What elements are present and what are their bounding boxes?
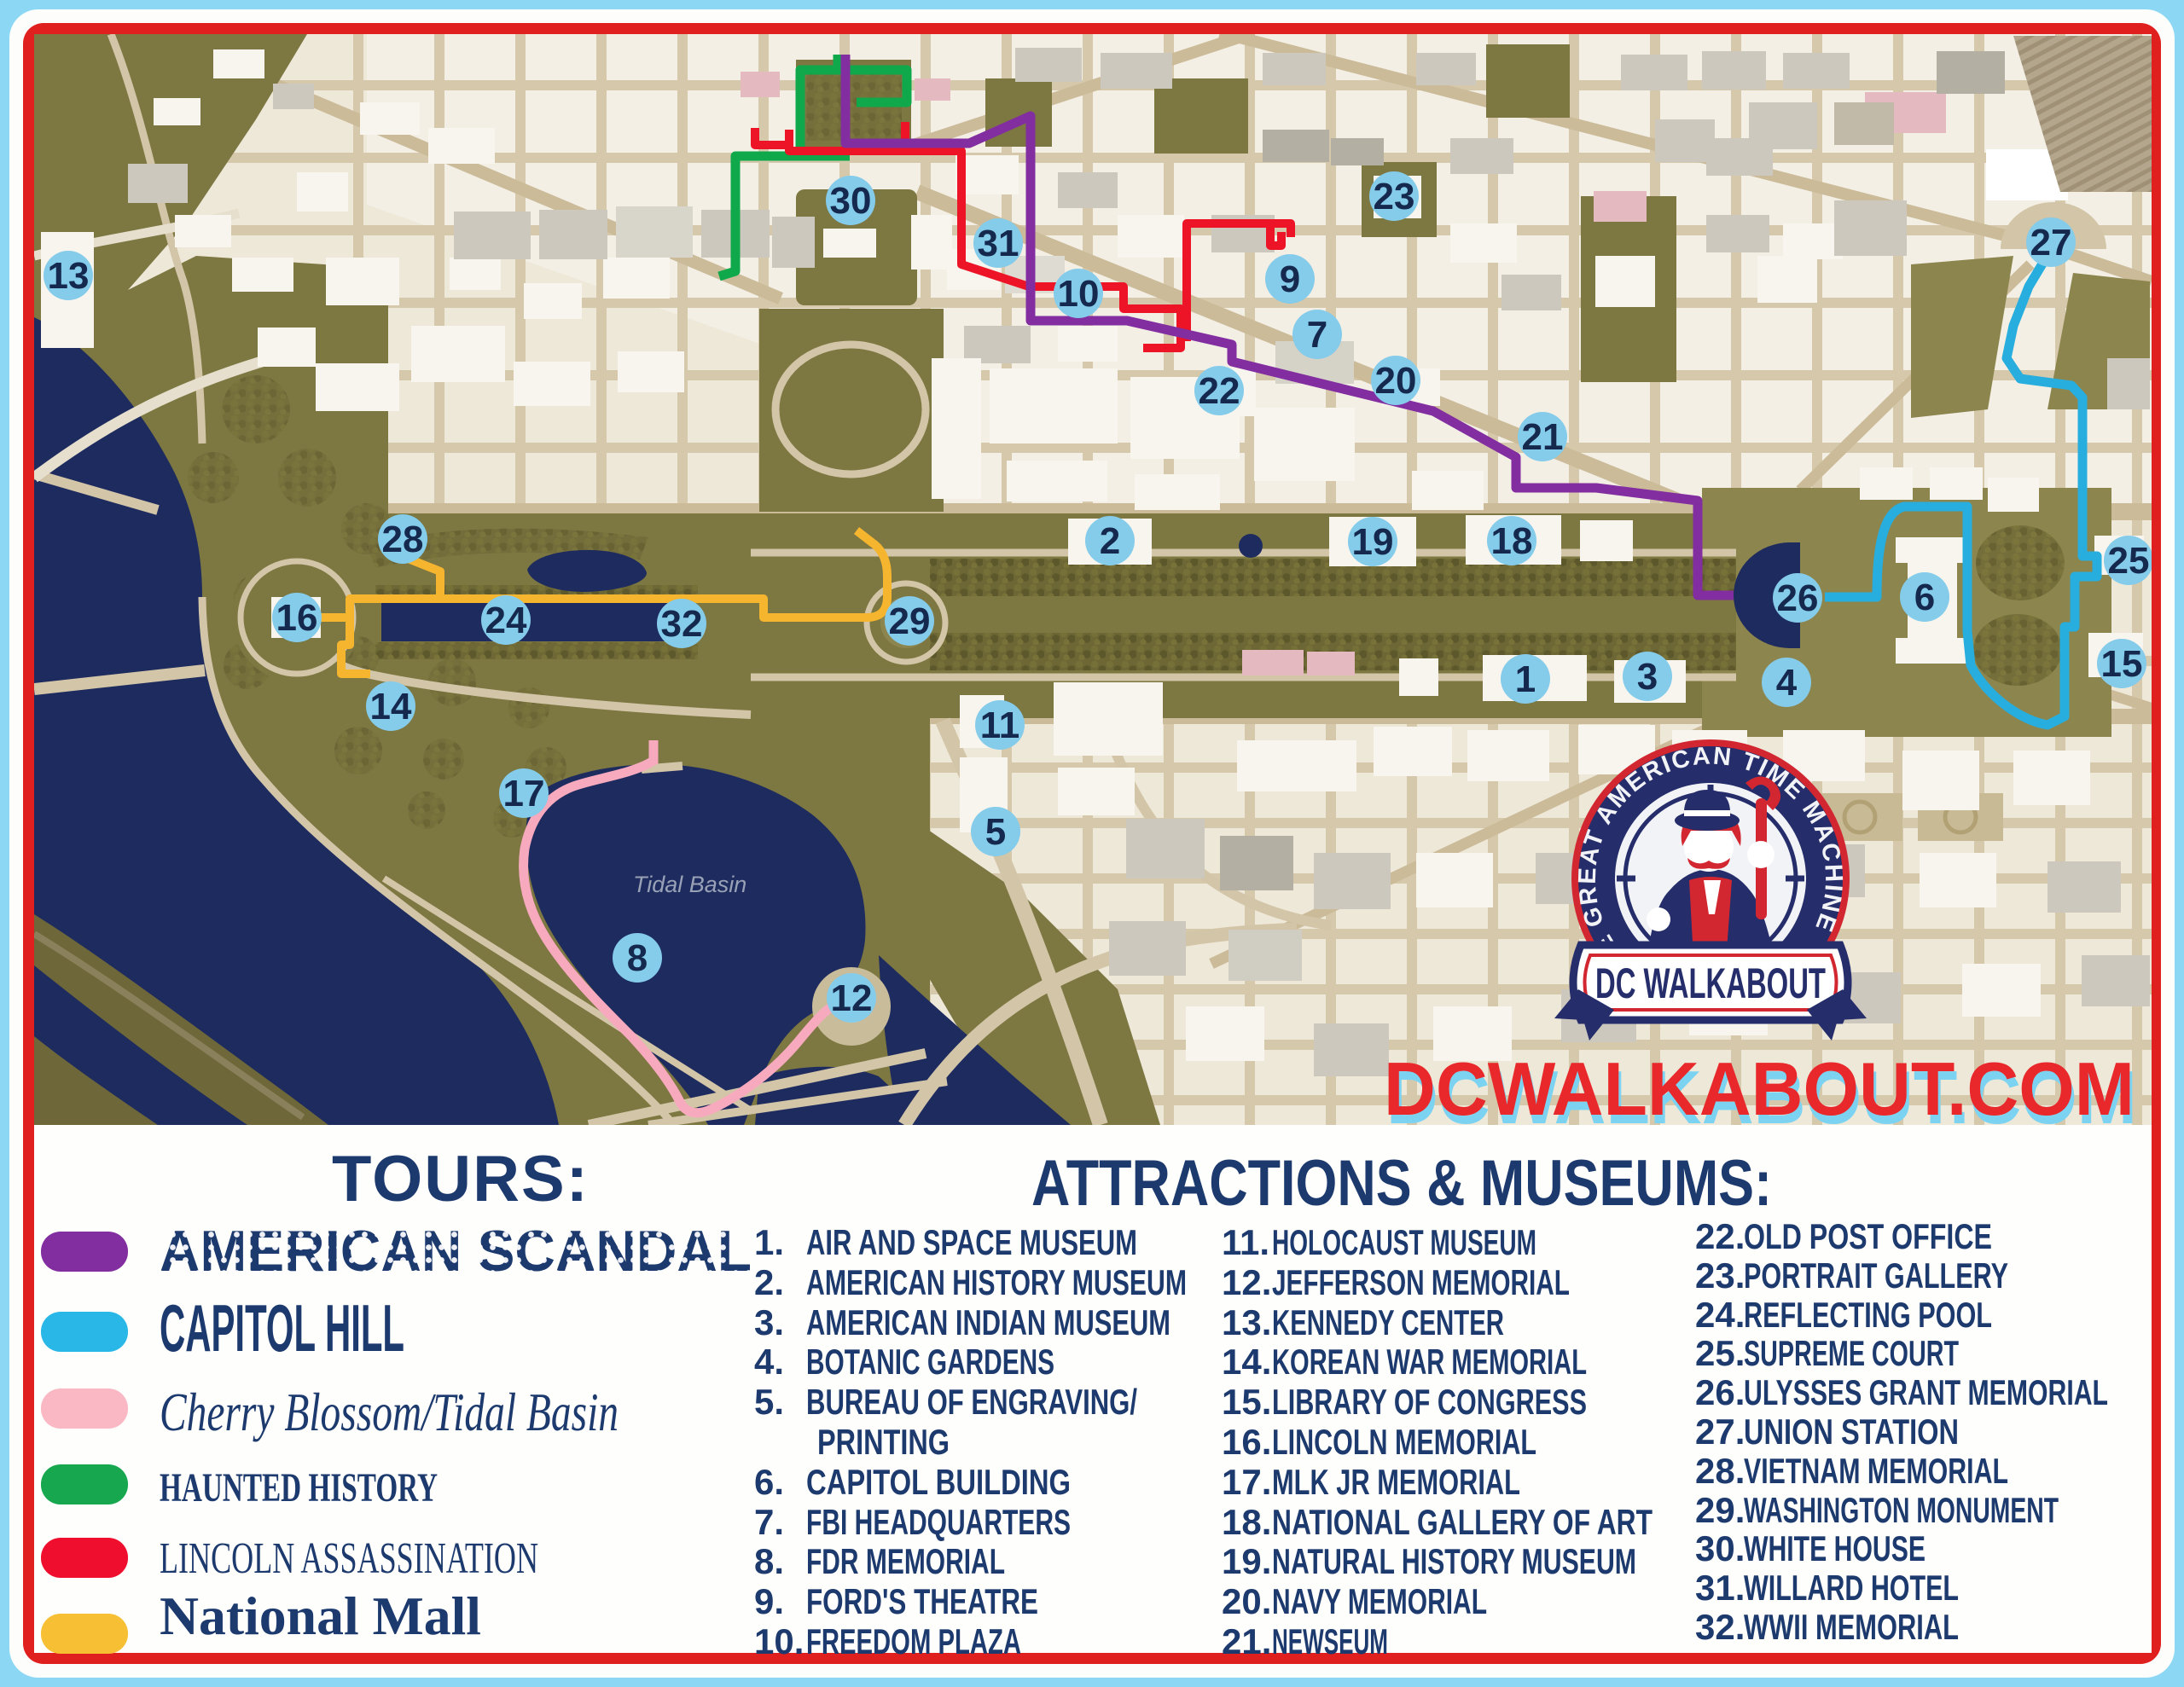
svg-text:14.: 14. [1222, 1342, 1271, 1382]
svg-text:25: 25 [2108, 540, 2150, 582]
svg-text:25.: 25. [1695, 1333, 1745, 1373]
svg-text:21: 21 [1522, 416, 1564, 458]
svg-text:4: 4 [1776, 662, 1798, 704]
svg-text:KENNEDY CENTER: KENNEDY CENTER [1272, 1302, 1504, 1342]
svg-text:29.: 29. [1695, 1490, 1745, 1530]
svg-text:3: 3 [1637, 656, 1658, 698]
svg-text:11: 11 [980, 704, 1020, 746]
svg-text:30.: 30. [1695, 1528, 1745, 1568]
svg-text:National Mall: National Mall [160, 1586, 481, 1646]
svg-text:FBI HEADQUARTERS: FBI HEADQUARTERS [806, 1502, 1071, 1542]
svg-text:17.: 17. [1222, 1462, 1271, 1502]
svg-text:6.: 6. [754, 1462, 784, 1502]
svg-text:UNION STATION: UNION STATION [1744, 1412, 1959, 1452]
svg-text:31: 31 [978, 223, 1019, 264]
svg-text:DC WALKABOUT: DC WALKABOUT [1595, 959, 1826, 1007]
svg-text:22.: 22. [1695, 1216, 1745, 1256]
svg-text:KOREAN WAR MEMORIAL: KOREAN WAR MEMORIAL [1272, 1342, 1587, 1382]
svg-text:26.: 26. [1695, 1372, 1745, 1412]
svg-text:10: 10 [1058, 273, 1100, 315]
svg-text:24.: 24. [1695, 1295, 1745, 1335]
svg-text:20.: 20. [1222, 1581, 1271, 1621]
svg-text:22: 22 [1199, 370, 1240, 412]
svg-text:7.: 7. [754, 1502, 784, 1542]
svg-text:27: 27 [2030, 222, 2072, 264]
svg-text:6: 6 [1914, 577, 1935, 618]
svg-text:5: 5 [985, 811, 1006, 853]
svg-text:NATURAL HISTORY MUSEUM: NATURAL HISTORY MUSEUM [1272, 1541, 1636, 1581]
svg-text:WILLARD HOTEL: WILLARD HOTEL [1744, 1568, 1959, 1608]
svg-text:OLD POST OFFICE: OLD POST OFFICE [1744, 1216, 1992, 1256]
svg-text:12.: 12. [1222, 1262, 1271, 1302]
svg-text:BOTANIC GARDENS: BOTANIC GARDENS [806, 1342, 1054, 1382]
svg-text:12: 12 [831, 977, 873, 1019]
svg-text:ATTRACTIONS & MUSEUMS:: ATTRACTIONS & MUSEUMS: [1031, 1147, 1772, 1220]
svg-text:HAUNTED HISTORY: HAUNTED HISTORY [160, 1465, 438, 1510]
svg-text:18.: 18. [1222, 1502, 1271, 1542]
svg-text:21.: 21. [1222, 1621, 1271, 1661]
svg-text:23: 23 [1374, 176, 1415, 217]
svg-text:LINCOLN ASSASSINATION: LINCOLN ASSASSINATION [160, 1534, 538, 1583]
svg-text:16.: 16. [1222, 1422, 1271, 1462]
svg-text:18: 18 [1491, 520, 1533, 562]
svg-text:7: 7 [1307, 314, 1327, 356]
svg-text:24: 24 [485, 600, 527, 641]
svg-text:28.: 28. [1695, 1451, 1745, 1491]
svg-text:MLK JR MEMORIAL: MLK JR MEMORIAL [1272, 1462, 1520, 1502]
svg-text:AMERICAN HISTORY MUSEUM: AMERICAN HISTORY MUSEUM [806, 1262, 1187, 1302]
svg-text:9.: 9. [754, 1581, 784, 1621]
svg-text:11.: 11. [1222, 1222, 1269, 1262]
svg-text:REFLECTING POOL: REFLECTING POOL [1744, 1295, 1992, 1335]
svg-text:NAVY MEMORIAL: NAVY MEMORIAL [1272, 1581, 1487, 1621]
svg-text:23.: 23. [1695, 1255, 1745, 1296]
svg-text:DCWALKABOUT.COM: DCWALKABOUT.COM [1384, 1046, 2135, 1131]
svg-text:30: 30 [830, 180, 872, 222]
svg-text:15.: 15. [1222, 1382, 1271, 1422]
svg-text:FDR MEMORIAL: FDR MEMORIAL [806, 1541, 1005, 1581]
svg-text:SUPREME COURT: SUPREME COURT [1744, 1333, 1959, 1373]
svg-text:8: 8 [627, 937, 648, 979]
svg-text:2.: 2. [754, 1262, 784, 1302]
svg-text:AMERICAN SCANDAL: AMERICAN SCANDAL [160, 1219, 752, 1284]
svg-text:10.: 10. [754, 1621, 804, 1661]
svg-text:14: 14 [370, 686, 412, 728]
svg-text:JEFFERSON MEMORIAL: JEFFERSON MEMORIAL [1272, 1262, 1570, 1302]
svg-text:3.: 3. [754, 1302, 784, 1342]
svg-text:Tidal Basin: Tidal Basin [633, 872, 746, 897]
svg-text:WHITE HOUSE: WHITE HOUSE [1744, 1528, 1926, 1568]
svg-text:32: 32 [661, 603, 703, 645]
svg-text:13: 13 [48, 255, 90, 297]
svg-text:LIBRARY OF CONGRESS: LIBRARY OF CONGRESS [1272, 1382, 1587, 1422]
svg-text:BUREAU OF ENGRAVING/: BUREAU OF ENGRAVING/ [806, 1382, 1137, 1422]
svg-text:FORD'S THEATRE: FORD'S THEATRE [806, 1581, 1038, 1621]
svg-text:2: 2 [1100, 520, 1120, 562]
svg-text:FREEDOM PLAZA: FREEDOM PLAZA [806, 1621, 1021, 1661]
svg-text:1.: 1. [754, 1222, 784, 1262]
svg-text:32.: 32. [1695, 1607, 1745, 1647]
svg-text:PRINTING: PRINTING [817, 1422, 950, 1462]
svg-text:LINCOLN MEMORIAL: LINCOLN MEMORIAL [1272, 1422, 1536, 1462]
svg-text:29: 29 [889, 600, 931, 642]
svg-text:TOURS:: TOURS: [332, 1143, 590, 1215]
svg-text:16: 16 [276, 597, 318, 639]
svg-text:19: 19 [1352, 521, 1394, 563]
svg-text:ULYSSES GRANT MEMORIAL: ULYSSES GRANT MEMORIAL [1744, 1372, 2108, 1412]
svg-text:28: 28 [382, 519, 424, 560]
svg-text:AIR AND SPACE MUSEUM: AIR AND SPACE MUSEUM [806, 1222, 1137, 1262]
svg-text:26: 26 [1777, 577, 1819, 619]
svg-text:4.: 4. [754, 1342, 784, 1382]
svg-text:WASHINGTON MONUMENT: WASHINGTON MONUMENT [1744, 1490, 2059, 1530]
svg-text:NATIONAL GALLERY OF ART: NATIONAL GALLERY OF ART [1272, 1502, 1653, 1542]
svg-text:CAPITOL HILL: CAPITOL HILL [160, 1290, 404, 1365]
svg-text:5.: 5. [754, 1382, 784, 1422]
svg-text:1: 1 [1515, 658, 1536, 700]
svg-text:27.: 27. [1695, 1412, 1745, 1452]
svg-text:WWII MEMORIAL: WWII MEMORIAL [1744, 1607, 1959, 1647]
svg-text:PORTRAIT GALLERY: PORTRAIT GALLERY [1744, 1255, 2008, 1296]
svg-text:HOLOCAUST MUSEUM: HOLOCAUST MUSEUM [1272, 1222, 1536, 1262]
svg-text:31.: 31. [1695, 1568, 1745, 1608]
svg-text:NEWSEUM: NEWSEUM [1272, 1621, 1388, 1661]
svg-text:13.: 13. [1222, 1302, 1271, 1342]
svg-text:Cherry Blossom/Tidal Basin: Cherry Blossom/Tidal Basin [160, 1382, 619, 1442]
svg-text:15: 15 [2101, 643, 2143, 685]
svg-text:9: 9 [1280, 258, 1300, 300]
svg-text:19.: 19. [1222, 1541, 1271, 1581]
svg-text:8.: 8. [754, 1541, 784, 1581]
svg-text:20: 20 [1375, 360, 1417, 402]
svg-text:CAPITOL BUILDING: CAPITOL BUILDING [806, 1462, 1071, 1502]
svg-text:17: 17 [503, 773, 545, 815]
svg-text:AMERICAN INDIAN MUSEUM: AMERICAN INDIAN MUSEUM [806, 1302, 1170, 1342]
svg-text:VIETNAM MEMORIAL: VIETNAM MEMORIAL [1744, 1451, 2008, 1491]
